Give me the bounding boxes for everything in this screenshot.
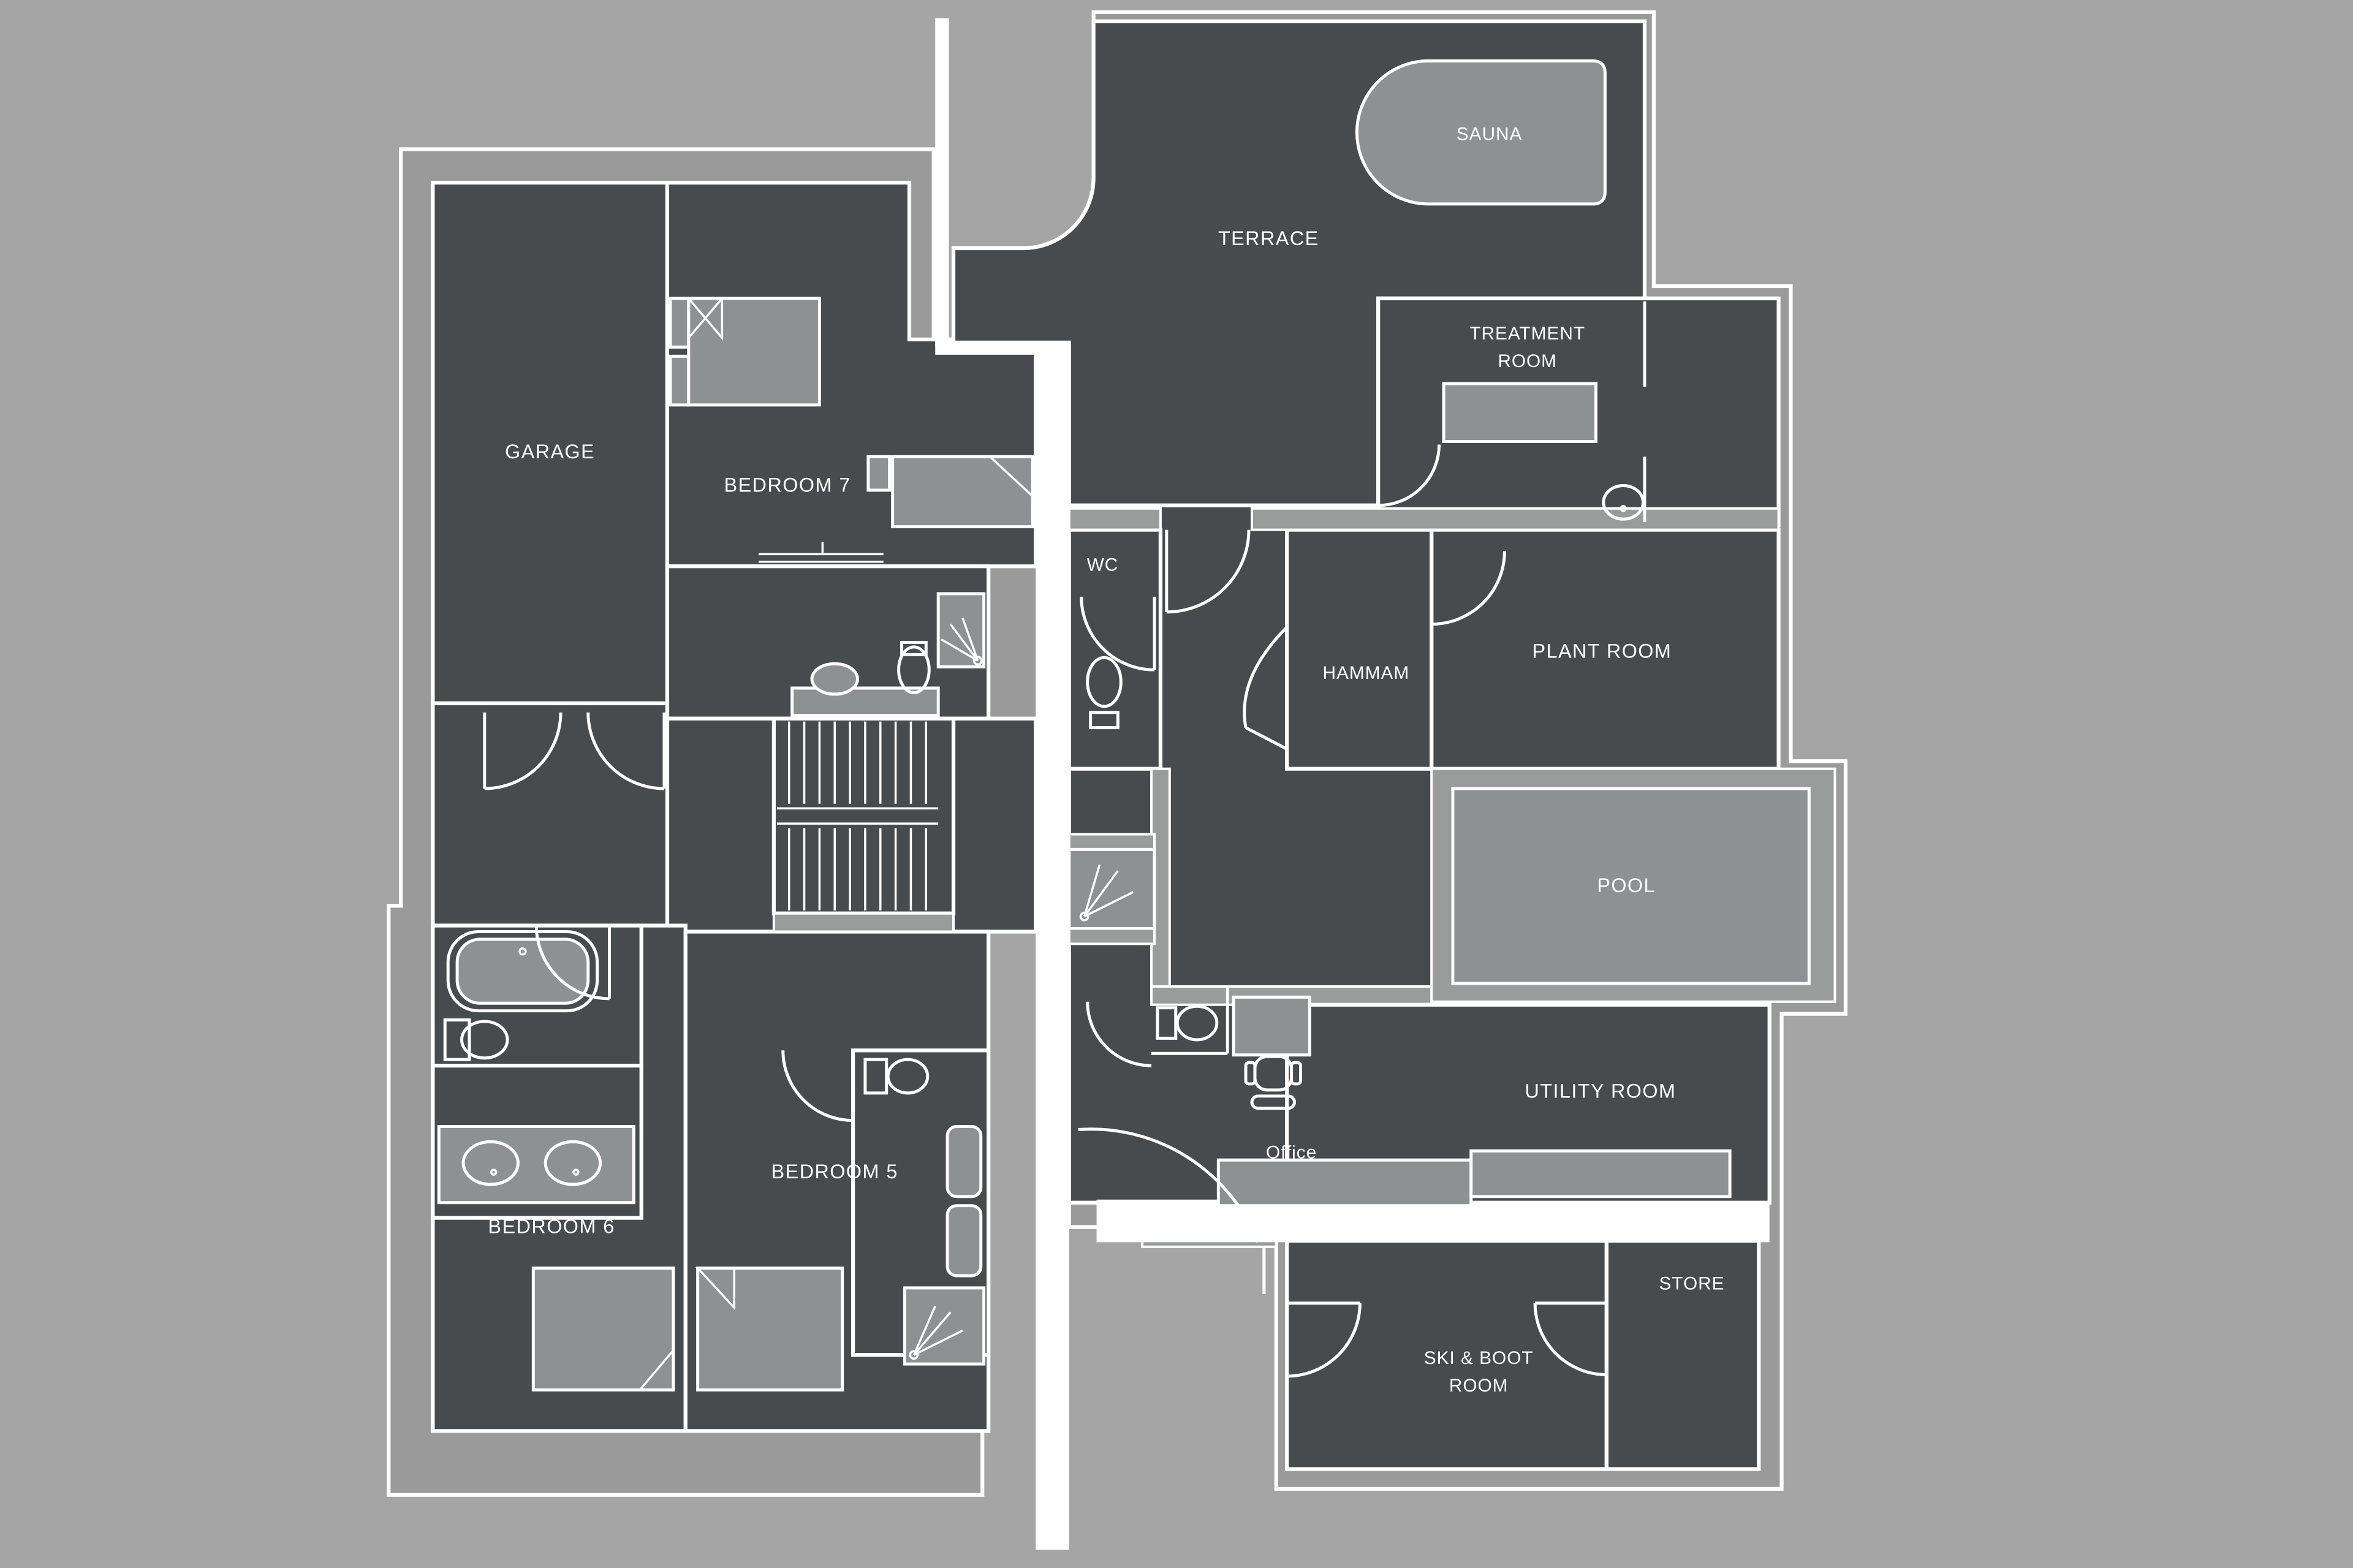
stairs-bottom-wall xyxy=(774,914,953,932)
vanity-two-sinks xyxy=(439,1127,634,1203)
single-bed-icon xyxy=(533,1268,673,1390)
single-bed-icon xyxy=(698,1268,843,1390)
nightstand-icon xyxy=(868,456,890,490)
room-label-ski-2: ROOM xyxy=(1449,1376,1509,1396)
room-label-store: STORE xyxy=(1659,1273,1724,1293)
towel-radiator-icon xyxy=(947,1206,981,1276)
sink-icon xyxy=(812,664,858,694)
room-label-bedroom6: BEDROOM 6 xyxy=(488,1215,615,1237)
terrace-spa-wall xyxy=(1069,509,1161,530)
spa-shower-wall xyxy=(1069,929,1154,944)
nightstand-icon xyxy=(670,356,689,405)
room-hammam xyxy=(1287,530,1431,769)
utility-counter xyxy=(1471,1151,1730,1197)
office-desk xyxy=(1233,997,1309,1055)
shower-icon xyxy=(1069,849,1154,928)
single-bed-icon xyxy=(893,456,1033,526)
floor-plan-page: GARAGE BEDROOM 7 WC HAMMAM TERRACE SAUNA… xyxy=(0,0,2353,1568)
utility-counter xyxy=(1218,1160,1471,1206)
room-label-wc: WC xyxy=(1087,555,1119,575)
floor-plan-canvas: GARAGE BEDROOM 7 WC HAMMAM TERRACE SAUNA… xyxy=(0,0,2353,1568)
massage-table xyxy=(1444,384,1596,441)
party-wall-spine xyxy=(1036,347,1069,1550)
room-hallway xyxy=(433,703,667,926)
room-label-terrace: TERRACE xyxy=(1218,227,1319,249)
room-label-pool: POOL xyxy=(1597,874,1656,896)
room-label-office: Office xyxy=(1266,1143,1317,1163)
room-label-garage: GARAGE xyxy=(505,441,595,463)
room-label-hammam: HAMMAM xyxy=(1322,663,1409,683)
spa-shower-wall xyxy=(1069,834,1154,849)
room-label-sauna: SAUNA xyxy=(1457,124,1523,145)
room-label-plant: PLANT ROOM xyxy=(1533,640,1672,662)
room-label-ski-1: SKI & BOOT xyxy=(1424,1348,1534,1368)
room-label-bedroom5: BEDROOM 5 xyxy=(771,1161,898,1183)
party-wall-spine-top xyxy=(935,18,949,347)
room-label-utility: UTILITY ROOM xyxy=(1525,1080,1676,1102)
room-label-bedroom7: BEDROOM 7 xyxy=(724,474,851,496)
nightstand-icon xyxy=(670,298,689,347)
towel-radiator-icon xyxy=(947,1127,981,1197)
room-label-treatment-2: ROOM xyxy=(1498,351,1557,371)
terrace-spa-wall xyxy=(1252,509,1779,530)
room-label-treatment-1: TREATMENT xyxy=(1469,324,1585,344)
